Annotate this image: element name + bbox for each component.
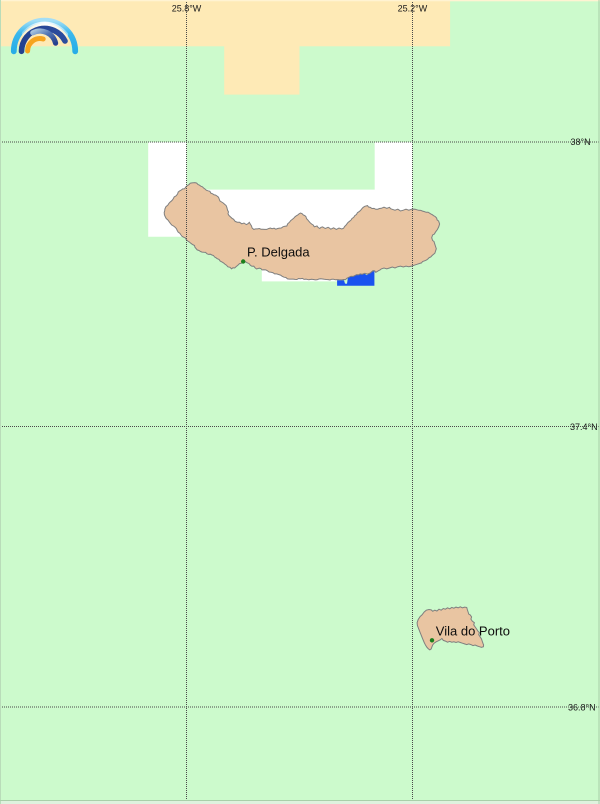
svg-text:38°N: 38°N [571,137,591,147]
svg-text:37.4°N: 37.4°N [570,422,598,432]
svg-text:P. Delgada: P. Delgada [247,244,310,259]
svg-text:Vila do Porto: Vila do Porto [436,623,510,638]
svg-text:36.8°N: 36.8°N [568,702,596,712]
svg-text:25.8°W: 25.8°W [172,3,202,13]
svg-text:25.2°W: 25.2°W [398,3,428,13]
